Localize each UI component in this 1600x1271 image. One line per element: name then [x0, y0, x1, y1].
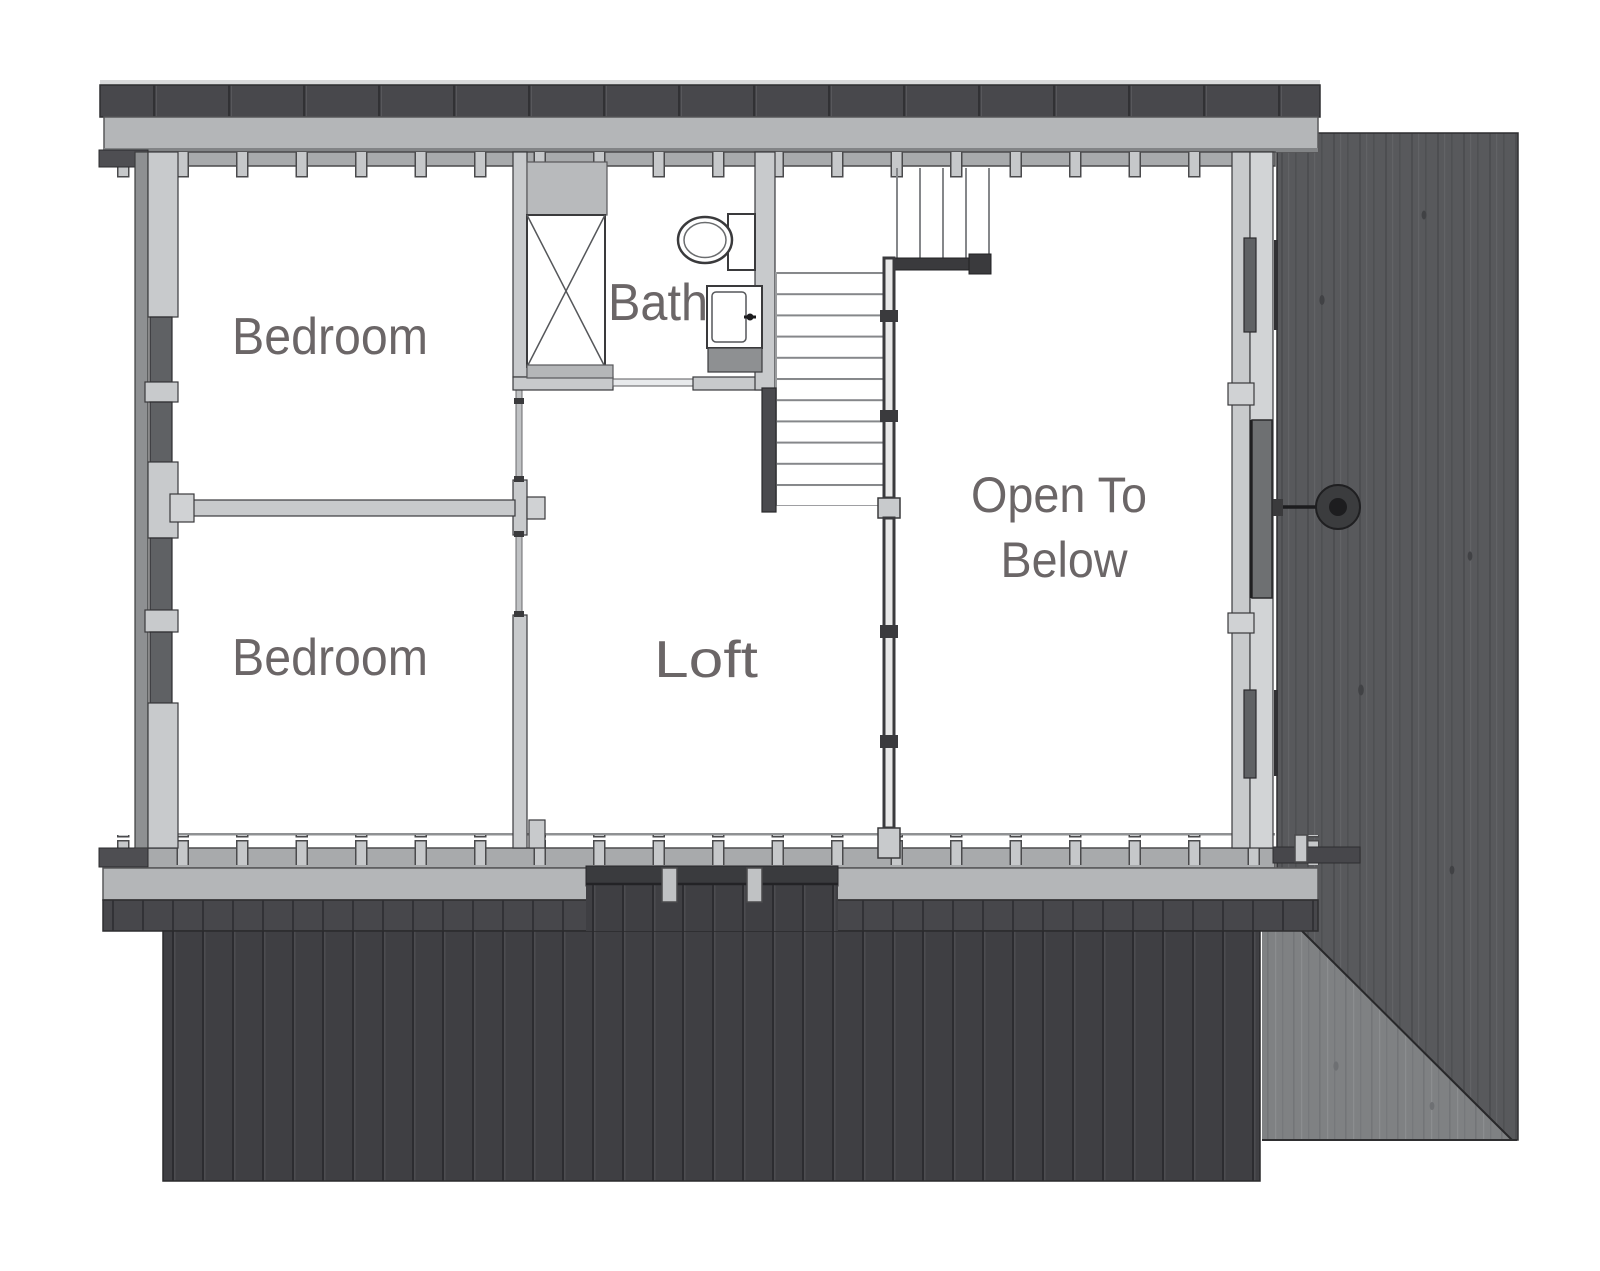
- sink-icon: [707, 286, 762, 372]
- bedroom-divider-wall: [175, 500, 515, 516]
- label-open-to-below-line2: Below: [1001, 532, 1129, 588]
- left-window: [150, 402, 172, 462]
- window-sill: [1228, 383, 1254, 405]
- bedroom-door-opening: [516, 535, 522, 615]
- corner-rafter-tail: [1295, 835, 1307, 862]
- right-exterior-door: [1252, 420, 1272, 598]
- window-sill: [145, 382, 178, 402]
- label-bath: Bath: [608, 274, 708, 332]
- shower-icon: [527, 215, 613, 378]
- wood-knot: [1422, 211, 1427, 220]
- door-mullion: [747, 868, 762, 902]
- label-open-to-below-line1: Open To: [971, 467, 1147, 523]
- wall-cap: [514, 611, 524, 617]
- bedroom-loft-wall: [513, 615, 527, 848]
- sink-cabinet: [708, 348, 762, 372]
- wood-knot: [1450, 866, 1455, 875]
- staircase: [762, 168, 991, 512]
- bath-door: [613, 379, 693, 386]
- label-bedroom-bottom: Bedroom: [232, 629, 428, 687]
- wood-deck-panel: [1262, 133, 1518, 1140]
- stair-stringer-wall: [762, 388, 776, 512]
- floor-plan-page: Bedroom Bedroom Bath Loft Open To Below: [0, 0, 1600, 1271]
- rail-end-post: [969, 254, 991, 274]
- wall-cap: [514, 476, 524, 482]
- loft-railing: [878, 498, 900, 858]
- floor-plan: Bedroom Bedroom Bath Loft Open To Below: [0, 0, 1600, 1271]
- top-roof-edge: [99, 80, 1320, 179]
- right-window: [1244, 238, 1256, 332]
- wood-knot: [1430, 1102, 1435, 1110]
- shower-curb: [527, 365, 613, 378]
- sink-basin: [712, 292, 746, 342]
- window-jamb-mark: [1274, 240, 1278, 330]
- lower-roof-field: [163, 931, 1260, 1181]
- sink-faucet-handle: [747, 314, 754, 321]
- ridge-cap-strip: [100, 85, 1320, 117]
- left-window: [150, 632, 172, 703]
- left-wall-segment: [148, 703, 178, 848]
- left-wall-segment: [148, 152, 178, 317]
- label-bedroom-top: Bedroom: [232, 308, 428, 366]
- wall-cap: [514, 398, 524, 404]
- bottom-roof-assembly: [99, 833, 1360, 1181]
- railing-rail: [884, 518, 894, 828]
- wall-end-block: [529, 820, 545, 848]
- center-roof-step: [586, 884, 838, 931]
- right-window: [1244, 690, 1256, 778]
- wood-knot: [1468, 551, 1473, 560]
- rail-bracket: [880, 410, 898, 422]
- rail-bracket: [880, 625, 898, 638]
- rail-bracket: [880, 735, 898, 748]
- bedroom-bath-wall: [513, 152, 527, 377]
- top-rafter-tails: [117, 152, 1271, 179]
- upper-stair-flight: [896, 168, 990, 260]
- window-jamb-mark: [1274, 690, 1278, 776]
- main-stair-flight: [776, 272, 884, 506]
- divider-wall-post: [170, 494, 194, 522]
- wall-cap: [514, 531, 524, 537]
- bottom-right-dark-strip: [1273, 847, 1360, 863]
- bath-south-wall: [513, 377, 613, 390]
- railing-post: [878, 828, 900, 858]
- room-labels: Bedroom Bedroom Bath Loft Open To Below: [232, 274, 1147, 689]
- divider-wall-cap: [527, 497, 545, 519]
- left-wall-outer-face: [135, 152, 148, 848]
- rail-bracket: [880, 310, 898, 322]
- right-exterior-wall: [1228, 152, 1278, 848]
- toilet-icon: [678, 214, 755, 270]
- light-bulb: [1329, 498, 1347, 516]
- light-mount: [1273, 499, 1283, 516]
- stair-guard-rail: [884, 258, 894, 498]
- bottom-rafter-tails: [117, 835, 1319, 865]
- wood-knot: [1319, 295, 1324, 305]
- window-sill: [1228, 613, 1254, 633]
- left-window: [150, 538, 172, 610]
- wood-knot: [1333, 1061, 1338, 1070]
- door-mullion: [662, 868, 677, 902]
- toilet-bowl: [678, 217, 732, 263]
- label-loft: Loft: [654, 631, 759, 689]
- window-sill: [145, 610, 178, 632]
- bottom-left-corner-block: [99, 848, 148, 867]
- left-window: [150, 317, 172, 382]
- railing-post: [878, 498, 900, 518]
- wood-knot: [1358, 685, 1364, 696]
- shower-plumbing-wall: [527, 162, 607, 215]
- top-eave-band: [104, 117, 1318, 152]
